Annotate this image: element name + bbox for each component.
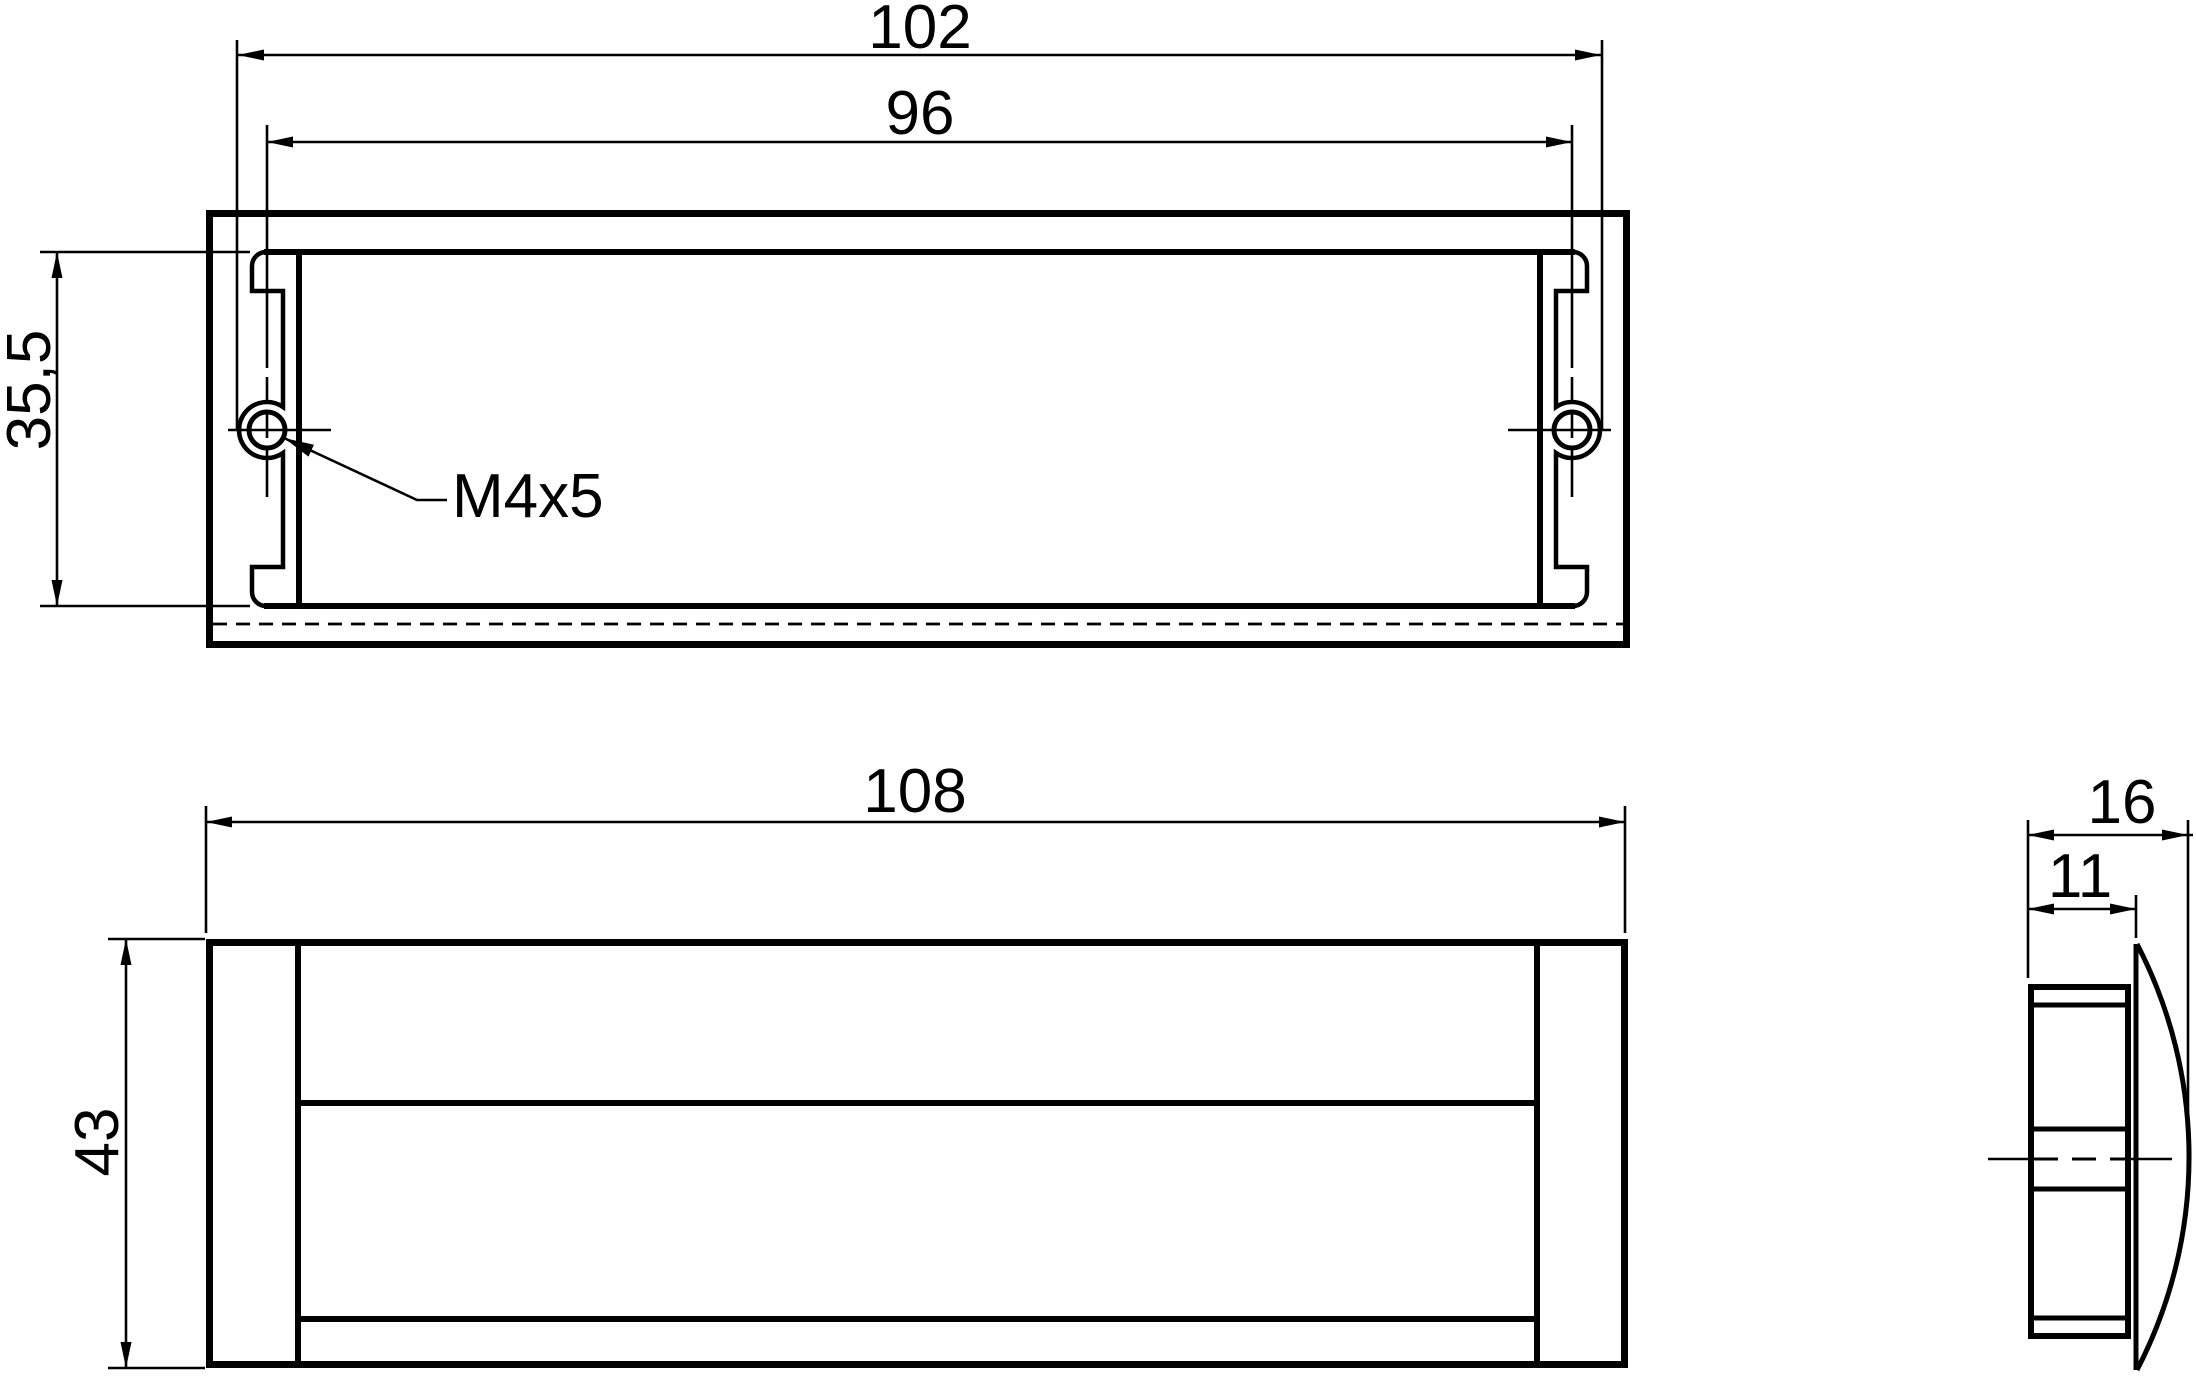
front-face-arc (2137, 944, 2189, 1370)
top-view: 102 96 35,5 M4x5 (0, 0, 1627, 645)
dim-35-5-label: 35,5 (0, 330, 64, 451)
dim-16-arrow-right (2162, 830, 2188, 841)
dim-102-arrow-left (238, 50, 264, 61)
dim-43-arrow-top (121, 939, 132, 965)
dim-96: 96 (267, 79, 1572, 148)
dim-108-arrow-right (1599, 817, 1625, 828)
side-body-outline (2031, 987, 2128, 1336)
dim-16-label: 16 (2088, 768, 2157, 837)
dim-96-arrow-left (267, 137, 293, 148)
dim-43-label: 43 (63, 1108, 132, 1177)
side-view: 16 11 (1988, 768, 2193, 1370)
dim-11-label: 11 (2048, 842, 2112, 911)
dim-96-arrow-right (1546, 137, 1572, 148)
dim-43: 43 (63, 939, 205, 1368)
front-view: 108 43 (63, 757, 1625, 1368)
top-view-outer-outline (210, 214, 1627, 645)
dim-108-arrow-left (206, 817, 232, 828)
dim-108: 108 (206, 757, 1625, 933)
technical-drawing-sheet: 102 96 35,5 M4x5 (0, 0, 2196, 1378)
front-view-outer-outline (210, 943, 1625, 1365)
dim-35-5-arrow-bottom (52, 580, 63, 606)
dim-35-5-arrow-top (52, 252, 63, 278)
dim-11: 11 (2028, 842, 2136, 938)
dim-102-label: 102 (868, 0, 971, 62)
dim-16-arrow-left (2028, 830, 2054, 841)
dim-16: 16 (2028, 768, 2193, 1152)
dim-108-label: 108 (863, 757, 966, 826)
thread-callout-label: M4x5 (452, 462, 604, 531)
flush-handle-drawing: 102 96 35,5 M4x5 (0, 0, 2196, 1378)
dim-102-arrow-right (1575, 50, 1601, 61)
dim-96-label: 96 (886, 79, 955, 148)
dim-43-arrow-bottom (121, 1342, 132, 1368)
thread-callout: M4x5 (284, 438, 604, 531)
dim-11-arrow-right (2110, 904, 2136, 915)
